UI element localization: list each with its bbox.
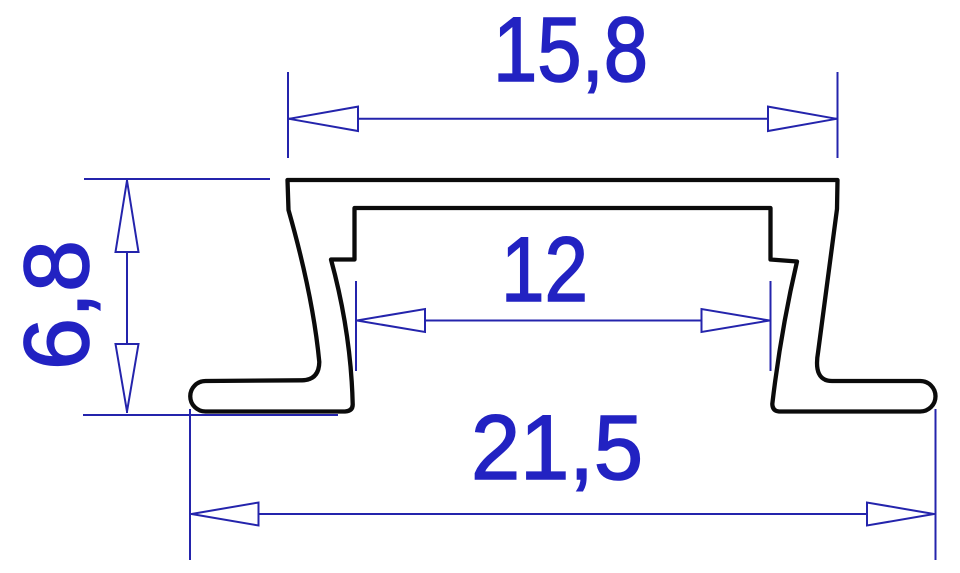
svg-text:21,5: 21,5 bbox=[471, 397, 643, 499]
svg-text:6,8: 6,8 bbox=[6, 240, 108, 370]
svg-text:15,8: 15,8 bbox=[493, 0, 648, 101]
svg-text:12: 12 bbox=[501, 219, 588, 321]
